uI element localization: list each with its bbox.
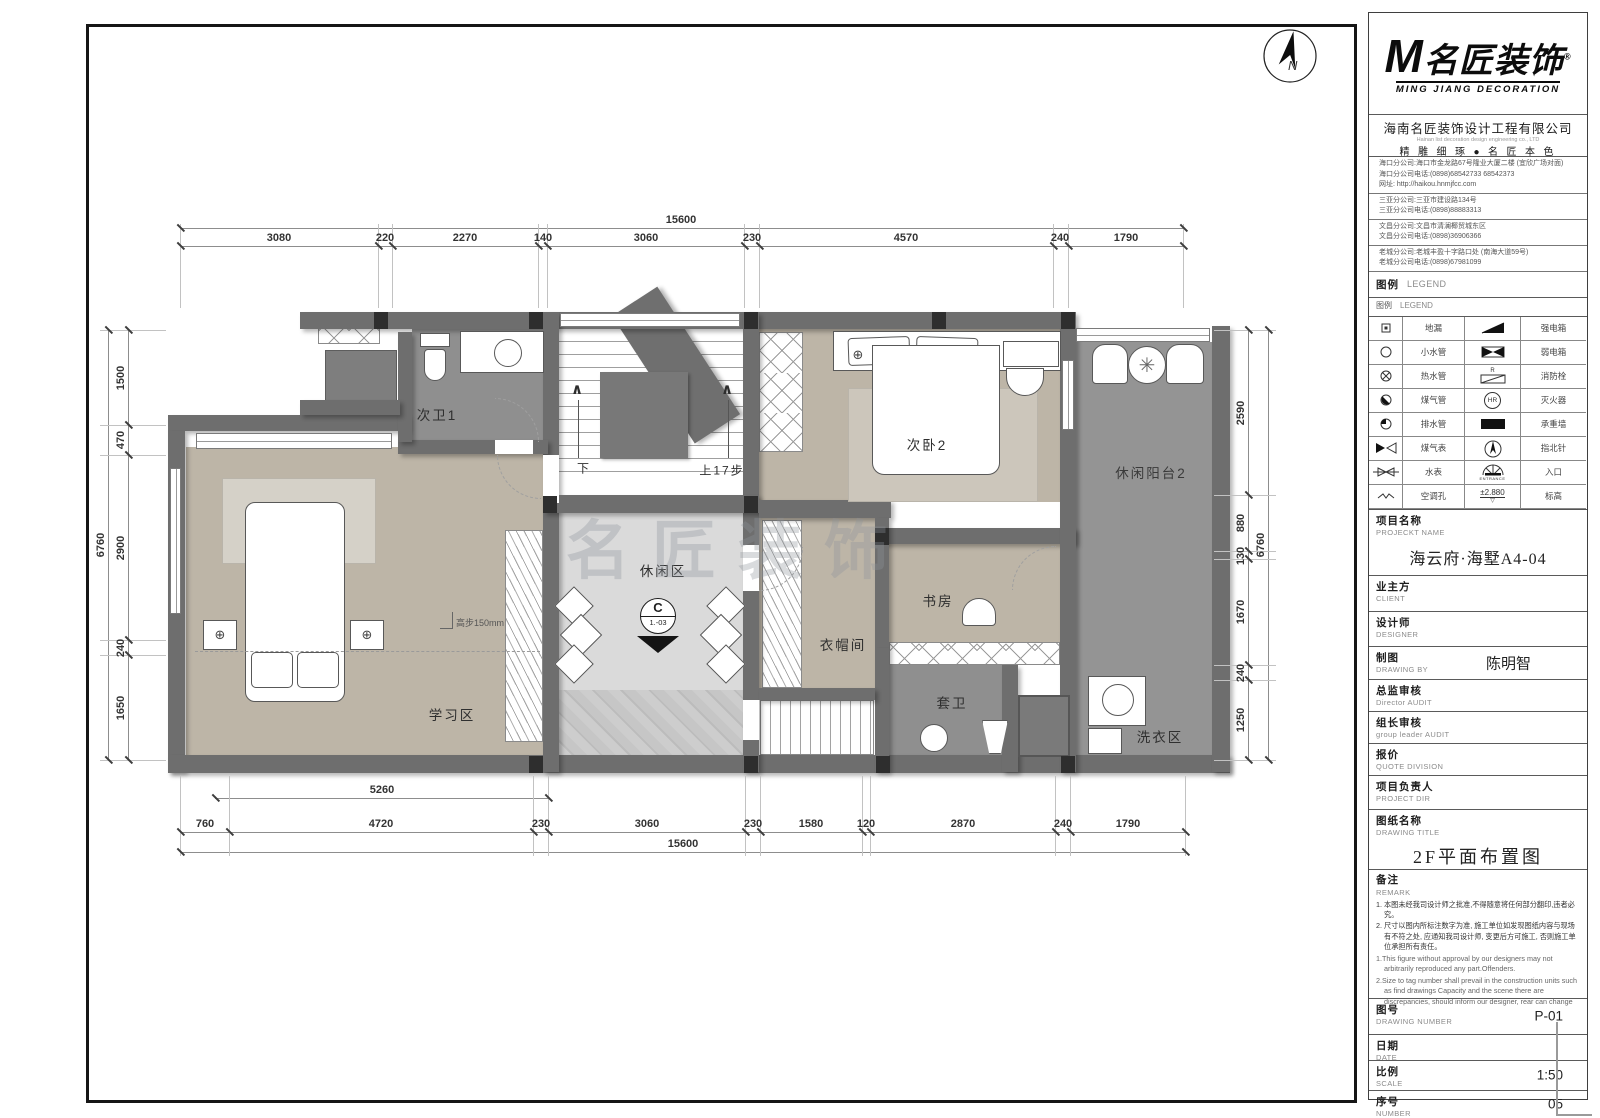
drawing-by-value: 陈明智 <box>1486 652 1531 673</box>
legend-label: 水表 <box>1403 461 1465 485</box>
ext-line <box>870 776 871 856</box>
wall <box>875 648 889 772</box>
stair-up-label: 上17步 <box>699 462 744 479</box>
legend-subheader-en: LEGEND <box>1400 301 1433 310</box>
legend-subheader: 图例 LEGEND <box>1369 298 1587 317</box>
field-drawing-by: 制图 DRAWING BY 陈明智 <box>1369 647 1587 680</box>
field-designer: 设计师 DESIGNER <box>1369 612 1587 647</box>
title-block: M名匠装饰® MING JIANG DECORATION 海南名匠装饰设计工程有… <box>1368 12 1588 1100</box>
wall <box>1002 665 1018 772</box>
branch-line: 三亚分公司电话:(0898)88883313 <box>1379 206 1583 217</box>
field-remark: 备注 REMARK 1. 本图未经我司设计师之批准,不得随意将任何部分翻印,违者… <box>1369 870 1587 999</box>
window <box>560 313 740 327</box>
leisure-wood-floor <box>559 690 743 755</box>
dim-line <box>180 228 1183 229</box>
dim-label: 120 <box>857 818 875 830</box>
branch-line: 老城分公司电话:(0898)67981099 <box>1379 258 1583 269</box>
drawing-title-value: 2F平面布置图 <box>1376 843 1580 869</box>
dim-label: 6760 <box>95 533 107 557</box>
branch-haikou: 海口分公司:海口市金龙路67号隆业大厦二楼 (宜欣广场对面) 海口分公司电话:(… <box>1369 157 1587 194</box>
column <box>529 312 543 329</box>
fire-hydrant-icon: R <box>1465 365 1521 389</box>
company-name-cn: 海南名匠装饰设计工程有限公司 <box>1376 118 1580 137</box>
door-gap <box>495 440 533 454</box>
entrance-icon: ENTRANCE <box>1465 461 1521 485</box>
pillow <box>297 652 339 688</box>
logo-brand: 名匠装饰 <box>1424 42 1564 80</box>
strong-electric-box-icon <box>1465 317 1521 341</box>
room-label-laundry: 洗衣区 <box>1137 726 1184 746</box>
branch-line: 海口分公司:海口市金龙路67号隆业大厦二楼 (宜欣广场对面) <box>1379 159 1583 170</box>
ext-line <box>1214 330 1276 331</box>
section-marker-code: 1.-03 <box>641 617 675 629</box>
north-arrow-icon <box>1465 437 1521 461</box>
ext-line <box>100 425 166 426</box>
column <box>744 312 758 329</box>
corner-mark <box>1556 1114 1592 1116</box>
dim-label: 3080 <box>267 232 291 244</box>
corner-mark <box>1556 1022 1558 1116</box>
dim-line <box>180 832 1185 833</box>
dim-label: 880 <box>1235 514 1247 532</box>
column <box>374 312 388 329</box>
legend-label: 地漏 <box>1403 317 1465 341</box>
dim-line <box>180 852 1185 853</box>
dim-label: 1650 <box>115 696 127 720</box>
floor-drain-icon <box>1369 317 1403 341</box>
remark-note: 2. 尺寸以图内所标注数字为准, 施工单位如发现图纸内容与现场有不符之处, 应通… <box>1376 921 1580 952</box>
window <box>170 468 181 614</box>
field-label-en: CLIENT <box>1376 594 1580 603</box>
fire-extinguisher-hr: HR <box>1484 392 1501 409</box>
ac-hole-icon <box>1369 485 1403 509</box>
section-marker-letter: C <box>641 599 675 617</box>
field-label-en: QUOTE DIVISION <box>1376 762 1580 771</box>
load-bearing-wall-icon <box>1465 413 1521 437</box>
legend-label: 入口 <box>1521 461 1586 485</box>
ext-line <box>229 776 230 856</box>
balcony-table-plant: ✳ <box>1128 346 1166 384</box>
dim-label: 1670 <box>1235 600 1247 624</box>
fire-extinguisher-icon: HR <box>1465 389 1521 413</box>
room-label-ensuite: 套卫 <box>937 692 968 712</box>
field-client: 业主方 CLIENT <box>1369 576 1587 612</box>
bedroom2-closet-hatch <box>759 332 803 452</box>
ext-line <box>180 224 181 308</box>
target-marker-icon: ⊕ <box>215 627 226 643</box>
ext-line <box>745 776 746 856</box>
washer-door <box>1102 684 1134 716</box>
field-label-en: REMARK <box>1376 888 1580 899</box>
ext-line <box>548 776 549 856</box>
field-label-cn: 设计师 <box>1376 615 1580 630</box>
branch-line: 三亚分公司:三亚市建设路134号 <box>1379 196 1583 207</box>
dim-label: 15600 <box>666 214 697 226</box>
dim-label: 220 <box>376 232 394 244</box>
dim-label: 2590 <box>1235 401 1247 425</box>
branch-line: 文昌分公司电话:(0898)36906366 <box>1379 232 1583 243</box>
dim-label: 470 <box>115 431 127 449</box>
column <box>744 756 758 773</box>
legend-header-cn: 图例 <box>1376 277 1399 292</box>
wall <box>1212 326 1230 772</box>
dim-line <box>1248 330 1249 760</box>
target-marker-icon: ⊕ <box>362 627 373 643</box>
remark-note-en: 1.This figure without approval by our de… <box>1376 954 1580 975</box>
dim-line <box>215 798 548 799</box>
branch-sanya: 三亚分公司:三亚市建设路134号 三亚分公司电话:(0898)88883313 <box>1369 194 1587 220</box>
company-logo: M名匠装饰® MING JIANG DECORATION <box>1369 13 1587 115</box>
project-name-value: 海云府·海墅A4-04 <box>1376 545 1580 569</box>
branch-line: 文昌分公司:文昌市清澜椰贸城东区 <box>1379 222 1583 233</box>
field-label-en: DESIGNER <box>1376 630 1580 639</box>
field-label-cn: 组长审核 <box>1376 715 1580 730</box>
field-scale: 比例 SCALE 1:50 <box>1369 1061 1587 1091</box>
field-label-cn: 业主方 <box>1376 579 1580 594</box>
ext-line <box>1070 776 1071 856</box>
dim-label: 760 <box>196 818 214 830</box>
room-label-balcony2: 休闲阳台2 <box>1115 462 1187 482</box>
branch-line: 海口分公司电话:(0898)68542733 68542373 <box>1379 170 1583 181</box>
field-label-en: DRAWING TITLE <box>1376 828 1580 837</box>
legend-label: 煤气表 <box>1403 437 1465 461</box>
legend-label: 标高 <box>1521 485 1586 509</box>
legend-label: 小水管 <box>1403 341 1465 365</box>
dim-label: 2870 <box>951 818 975 830</box>
column <box>1061 312 1075 329</box>
field-label-cn: 日期 <box>1376 1038 1580 1053</box>
field-label-cn: 总监审核 <box>1376 683 1580 698</box>
nightstand <box>1003 341 1059 367</box>
stair-arrow-stem <box>578 400 579 458</box>
legend-label: 承重墙 <box>1521 413 1586 437</box>
dim-label: 130 <box>1235 547 1247 565</box>
dim-label: 1250 <box>1235 708 1247 732</box>
room-label-study-area: 学习区 <box>429 704 476 724</box>
compass-north-label: N <box>1288 58 1297 73</box>
stair-down-label: 下 <box>577 460 591 477</box>
dim-label: 1580 <box>799 818 823 830</box>
dim-line <box>128 330 129 760</box>
dim-label: 1790 <box>1116 818 1140 830</box>
lower-stair <box>760 700 874 755</box>
dim-label: 230 <box>743 232 761 244</box>
toilet-tank <box>420 333 450 347</box>
field-group-leader-audit: 组长审核 group leader AUDIT <box>1369 712 1587 744</box>
study-chair <box>962 598 996 626</box>
leader-line <box>452 612 453 628</box>
ext-line <box>760 776 761 856</box>
door-gap <box>743 700 759 740</box>
level-symbol: ±2.880▽ <box>1465 485 1521 509</box>
ext-line <box>1185 776 1186 856</box>
scale-value: 1:50 <box>1537 1068 1563 1083</box>
ensuite-door-panel <box>1018 695 1070 757</box>
field-date: 日期 DATE <box>1369 1035 1587 1061</box>
ext-line <box>100 455 166 456</box>
column <box>932 312 946 329</box>
drain-pipe-icon <box>1369 413 1403 437</box>
section-marker: C 1.-03 <box>640 598 676 634</box>
field-number: 序号 NUMBER 05 <box>1369 1091 1587 1117</box>
legend-subheader-cn: 图例 <box>1376 300 1392 311</box>
balcony-chair <box>1166 344 1204 384</box>
gas-meter-icon <box>1369 437 1403 461</box>
pillow <box>251 652 293 688</box>
legend-label: 指北针 <box>1521 437 1586 461</box>
dim-line <box>180 246 1183 247</box>
basin <box>494 339 522 367</box>
dim-line <box>108 330 109 760</box>
field-project-name: 项目名称 PROJECKT NAME 海云府·海墅A4-04 <box>1369 510 1587 576</box>
wall <box>398 332 412 442</box>
logo-m: M <box>1385 30 1424 82</box>
hot-water-pipe-icon <box>1369 365 1403 389</box>
dim-label: 140 <box>534 232 552 244</box>
legend-header: 图例 LEGEND <box>1369 272 1587 298</box>
field-label-cn: 项目负责人 <box>1376 779 1580 794</box>
logo-wordmark: M名匠装饰® <box>1385 33 1572 79</box>
dim-label: 6760 <box>1255 533 1267 557</box>
column <box>529 756 543 773</box>
step-note: 高步150mm <box>456 616 504 629</box>
wall <box>300 400 400 415</box>
wall <box>168 415 408 431</box>
window <box>196 433 392 449</box>
branch-laocheng: 老城分公司:老城丰盈十字路口处 (南海大道59号) 老城分公司电话:(0898)… <box>1369 246 1587 272</box>
dim-label: 1500 <box>115 366 127 390</box>
watermark: 名匠装饰 <box>566 500 910 592</box>
level-change-dash-line <box>195 651 540 652</box>
dim-label: 4570 <box>894 232 918 244</box>
field-director-audit: 总监审核 Director AUDIT <box>1369 680 1587 712</box>
room-label-cloakroom: 衣帽间 <box>820 634 867 654</box>
room-label-bath2-1: 次卫1 <box>417 404 458 424</box>
laundry-cabinet <box>1088 728 1122 754</box>
dim-label: 230 <box>532 818 550 830</box>
ext-line <box>862 776 863 856</box>
room-label-study: 书房 <box>923 590 954 610</box>
balcony-chair <box>1092 344 1128 384</box>
column <box>1061 756 1075 773</box>
stair-landing <box>600 372 688 458</box>
legend-table: 地漏 强电箱 小水管 弱电箱 热水管 R 消防栓 煤气管 HR 灭火器 排水管 … <box>1369 317 1587 510</box>
dim-label: 3060 <box>634 232 658 244</box>
branch-wenchang: 文昌分公司:文昌市清澜椰贸城东区 文昌分公司电话:(0898)36906366 <box>1369 220 1587 246</box>
logo-reg: ® <box>1564 51 1572 61</box>
dim-label: 2270 <box>453 232 477 244</box>
gas-pipe-icon <box>1369 389 1403 413</box>
legend-header-en: LEGEND <box>1407 279 1446 289</box>
field-label-cn: 项目名称 <box>1376 513 1580 528</box>
wall <box>543 312 559 772</box>
remark-note: 1. 本图未经我司设计师之批准,不得随意将任何部分翻印,违者必究。 <box>1376 900 1580 921</box>
dim-label: 240 <box>1235 664 1247 682</box>
level-value: ±2.880 <box>1480 489 1504 498</box>
field-label-cn: 备注 <box>1376 873 1580 888</box>
field-drawing-number: 图号 DRAWING NUMBER P-01 <box>1369 999 1587 1035</box>
level-triangle-icon: ▽ <box>1490 498 1495 504</box>
dim-label: 1790 <box>1114 232 1138 244</box>
field-label-en: PROJECT DIR <box>1376 794 1580 803</box>
ext-line <box>180 776 181 856</box>
entrance-text: ENTRANCE <box>1479 476 1505 481</box>
ext-line <box>1214 495 1276 496</box>
field-label-en: PROJECKT NAME <box>1376 528 1580 537</box>
ext-line <box>100 655 166 656</box>
legend-label: 热水管 <box>1403 365 1465 389</box>
dim-line <box>1268 330 1269 760</box>
field-label-en: Director AUDIT <box>1376 698 1580 707</box>
dim-label: 15600 <box>668 838 699 850</box>
small-water-pipe-icon <box>1369 341 1403 365</box>
dim-label: 3060 <box>635 818 659 830</box>
ext-line <box>1214 760 1276 761</box>
branch-line: 网址: http://haikou.hnmjfcc.com <box>1379 180 1583 191</box>
window <box>1076 328 1210 342</box>
weak-electric-box-icon <box>1465 341 1521 365</box>
leader-line <box>440 628 453 629</box>
wall <box>759 688 875 700</box>
water-meter-icon <box>1369 461 1403 485</box>
target-marker-icon: ⊕ <box>853 347 864 363</box>
logo-subtitle: MING JIANG DECORATION <box>1396 81 1560 95</box>
branch-line: 老城分公司:老城丰盈十字路口处 (南海大道59号) <box>1379 248 1583 259</box>
dim-label: 240 <box>1054 818 1072 830</box>
bed-bedroom2 <box>872 345 1000 475</box>
stair-arrow-right-icon: ∧ <box>721 380 733 398</box>
column <box>876 756 890 773</box>
ext-line <box>100 640 166 641</box>
dim-label: 5260 <box>370 784 394 796</box>
column <box>543 496 557 513</box>
legend-label: 煤气管 <box>1403 389 1465 413</box>
window <box>1062 360 1074 430</box>
legend-label: 空调孔 <box>1403 485 1465 509</box>
section-marker-arrow-icon <box>637 636 679 653</box>
field-label-en: group leader AUDIT <box>1376 730 1580 739</box>
drawing-number-value: P-01 <box>1534 1009 1563 1024</box>
field-label-cn: 图纸名称 <box>1376 813 1580 828</box>
legend-label: 消防栓 <box>1521 365 1586 389</box>
stair-arrow-stem <box>728 400 729 458</box>
ext-line <box>1055 776 1056 856</box>
legend-label: 排水管 <box>1403 413 1465 437</box>
field-label-cn: 报价 <box>1376 747 1580 762</box>
ensuite-toilet <box>920 724 948 752</box>
field-label-cn: 制图 <box>1376 650 1580 665</box>
field-label-en: DRAWING BY <box>1376 665 1580 674</box>
legend-label: 强电箱 <box>1521 317 1586 341</box>
legend-label: 灭火器 <box>1521 389 1586 413</box>
study-closet-hatch <box>889 642 1060 665</box>
legend-label: 弱电箱 <box>1521 341 1586 365</box>
stair-arrow-left-icon: ∧ <box>571 380 583 398</box>
dim-label: 2900 <box>115 536 127 560</box>
dim-label: 240 <box>115 639 127 657</box>
company-slogan: 精 雕 细 琢 ● 名 匠 本 色 <box>1376 143 1580 158</box>
field-drawing-title: 图纸名称 DRAWING TITLE 2F平面布置图 <box>1369 810 1587 870</box>
dim-label: 230 <box>744 818 762 830</box>
company-info: 海南名匠装饰设计工程有限公司 Hainan list decoration de… <box>1369 115 1587 157</box>
room-label-bedroom2: 次卧2 <box>907 434 948 454</box>
toilet-bowl <box>424 349 446 381</box>
ext-line <box>1183 224 1184 308</box>
dim-label: 4720 <box>369 818 393 830</box>
utility-closet <box>325 350 397 406</box>
field-quote: 报价 QUOTE DIVISION <box>1369 744 1587 776</box>
dim-label: 240 <box>1051 232 1069 244</box>
field-project-dir: 项目负责人 PROJECT DIR <box>1369 776 1587 810</box>
wardrobe-master <box>505 530 543 742</box>
ext-line <box>533 776 534 856</box>
